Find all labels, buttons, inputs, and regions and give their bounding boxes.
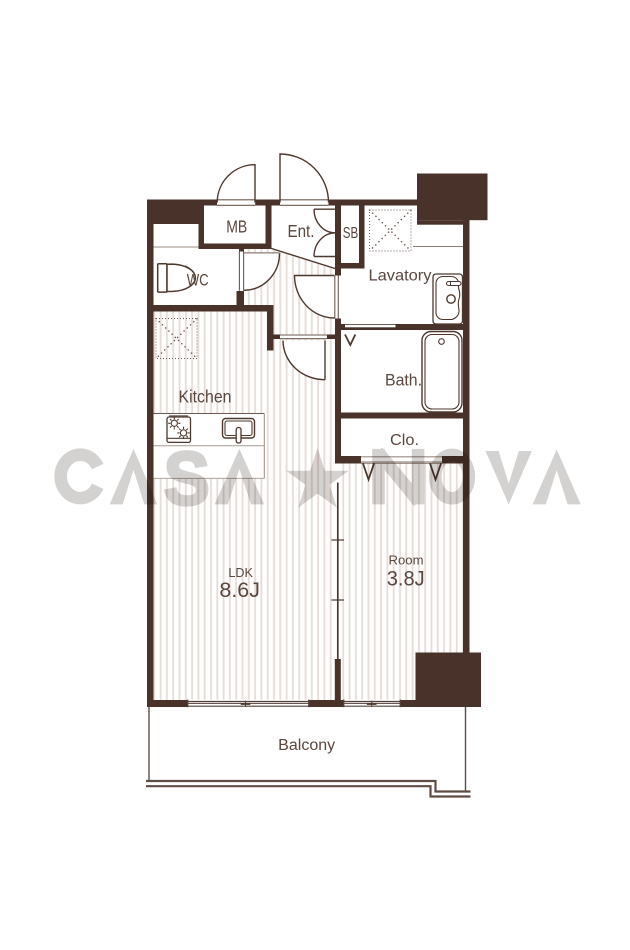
svg-text:MB: MB [226, 216, 247, 236]
svg-text:Kitchen: Kitchen [179, 386, 232, 406]
svg-text:LDK: LDK [228, 565, 253, 580]
svg-text:Ent.: Ent. [288, 221, 315, 241]
svg-text:Balcony: Balcony [278, 737, 335, 754]
svg-text:Room: Room [389, 553, 424, 568]
svg-text:3.8J: 3.8J [387, 567, 425, 591]
svg-text:Clo.: Clo. [390, 432, 419, 449]
svg-text:Lavatory: Lavatory [369, 267, 432, 284]
svg-text:8.6J: 8.6J [219, 579, 260, 602]
svg-text:WC: WC [187, 271, 209, 290]
svg-text:SB: SB [343, 225, 359, 242]
svg-text:Bath.: Bath. [385, 372, 422, 390]
svg-text:S: S [164, 436, 210, 520]
